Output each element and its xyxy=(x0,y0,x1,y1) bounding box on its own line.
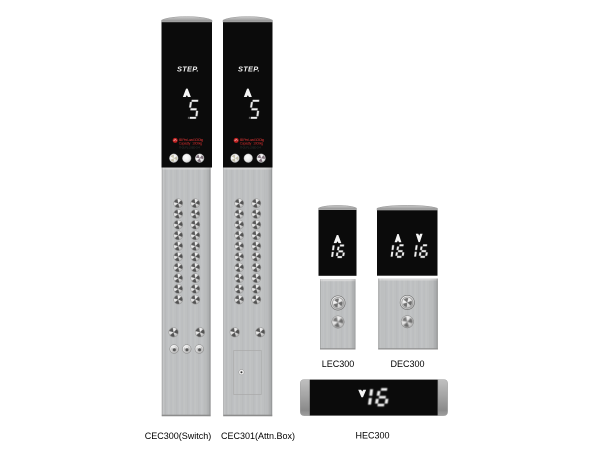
svg-text:LEC300: LEC300 xyxy=(322,359,355,369)
svg-text:DEC300: DEC300 xyxy=(390,359,424,369)
svg-text:STEP.: STEP. xyxy=(238,64,260,73)
svg-text:CEC301(Attn.Box): CEC301(Attn.Box) xyxy=(221,431,295,441)
svg-text:STEP.: STEP. xyxy=(177,64,199,73)
svg-text:HEC300: HEC300 xyxy=(355,431,389,441)
svg-text:CEC300(Switch): CEC300(Switch) xyxy=(145,431,212,441)
svg-text:IT-01 FL-2 BD-3 4: IT-01 FL-2 BD-3 4 xyxy=(240,145,261,149)
svg-text:IT-01 FL-2 BD-3 4: IT-01 FL-2 BD-3 4 xyxy=(179,145,200,149)
